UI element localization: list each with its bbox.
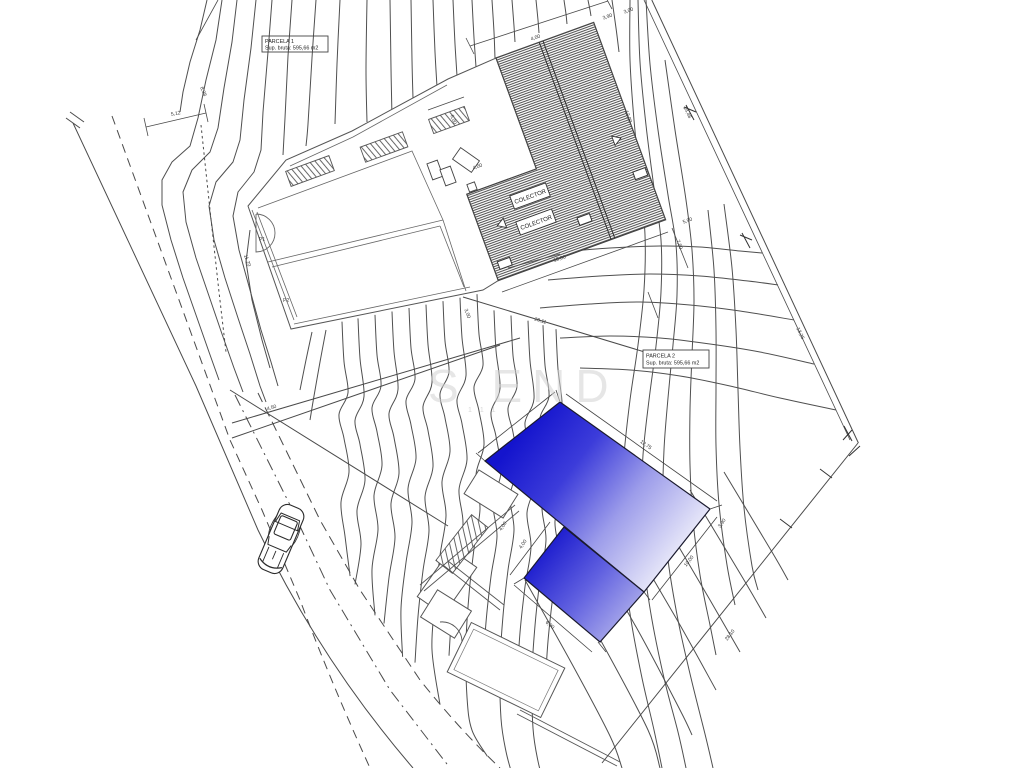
svg-text:P2: P2 bbox=[283, 298, 289, 304]
svg-text:S END: S END bbox=[428, 360, 619, 412]
svg-text:Sup. bruta: 595,66 m2: Sup. bruta: 595,66 m2 bbox=[646, 361, 699, 367]
svg-text:Sup. bruta: 595,66 m2: Sup. bruta: 595,66 m2 bbox=[265, 46, 318, 52]
svg-text:1 1 1: 1 1 1 bbox=[468, 407, 499, 414]
svg-text:PARCELA 2: PARCELA 2 bbox=[646, 354, 675, 360]
svg-text:P1: P1 bbox=[259, 237, 265, 243]
svg-text:PARCELA 1: PARCELA 1 bbox=[265, 39, 294, 45]
